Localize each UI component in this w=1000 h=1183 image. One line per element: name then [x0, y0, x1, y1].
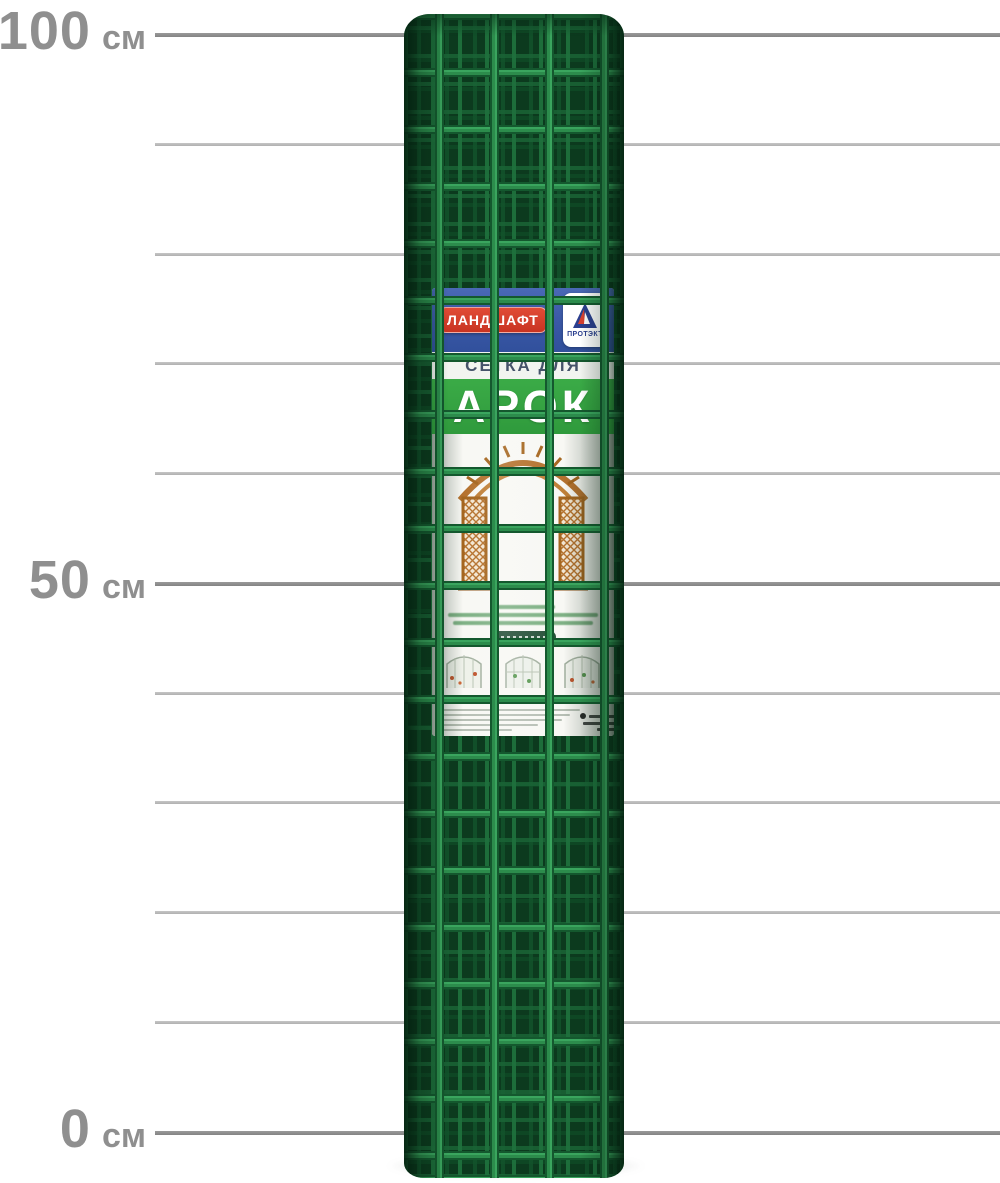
product-photo-stage: 100 см 50 см 0 см ЛАНДШАФТ — [0, 0, 1000, 1183]
label-title-band: АРОК — [432, 379, 614, 434]
greenhouse-sketch-icon — [442, 648, 486, 690]
size-badge-text — [501, 636, 545, 639]
label-subtitle: СЕТКА ДЛЯ — [465, 356, 581, 376]
scale-unit: см — [102, 21, 146, 55]
code-bar — [583, 722, 614, 725]
fine-print-line — [442, 709, 580, 711]
scale-label-0: 0 см — [0, 1102, 146, 1156]
product-code-block — [580, 713, 614, 731]
fine-print-line — [491, 605, 555, 609]
scale-value: 0 — [60, 1102, 91, 1156]
garden-arch-illustration — [448, 438, 598, 603]
mesh-roll: ЛАНДШАФТ ПРОТЭКТ СЕТКА ДЛЯ АРОК — [404, 14, 624, 1178]
greenhouse-sketch-icon — [501, 648, 545, 690]
code-bar — [597, 728, 614, 731]
scale-value: 100 — [0, 4, 91, 58]
code-bar — [589, 715, 614, 718]
label-subtitle-band: СЕТКА ДЛЯ — [432, 352, 614, 379]
code-row — [580, 713, 614, 719]
label-fine-print — [442, 709, 606, 731]
fine-print-line — [442, 729, 512, 731]
fine-print-line — [442, 719, 562, 721]
fine-print-line — [442, 714, 570, 716]
brand-badge-text: ЛАНДШАФТ — [447, 312, 539, 328]
protekt-logo: ПРОТЭКТ — [563, 293, 607, 347]
label-header-band: ЛАНДШАФТ ПРОТЭКТ — [432, 288, 614, 352]
usage-sketches — [432, 648, 614, 690]
scale-unit: см — [102, 1119, 146, 1153]
label-body — [432, 434, 614, 736]
logo-text: ПРОТЭКТ — [567, 331, 603, 338]
brand-badge: ЛАНДШАФТ — [439, 307, 547, 333]
label-feature-text — [432, 605, 614, 625]
scale-unit: см — [102, 570, 146, 604]
size-badge — [490, 631, 556, 643]
dot-icon — [580, 713, 586, 719]
product-label: ЛАНДШАФТ ПРОТЭКТ СЕТКА ДЛЯ АРОК — [432, 288, 614, 736]
scale-value: 50 — [29, 553, 91, 607]
fine-print-block — [442, 709, 580, 731]
arch-icon — [448, 438, 598, 598]
scale-label-100: 100 см — [0, 4, 146, 58]
greenhouse-sketch-icon — [560, 648, 604, 690]
label-title: АРОК — [453, 384, 593, 429]
triangle-logo-icon — [572, 302, 598, 330]
fine-print-line — [442, 724, 538, 726]
scale-label-50: 50 см — [0, 553, 146, 607]
fine-print-line — [453, 621, 593, 625]
fine-print-line — [448, 613, 598, 617]
